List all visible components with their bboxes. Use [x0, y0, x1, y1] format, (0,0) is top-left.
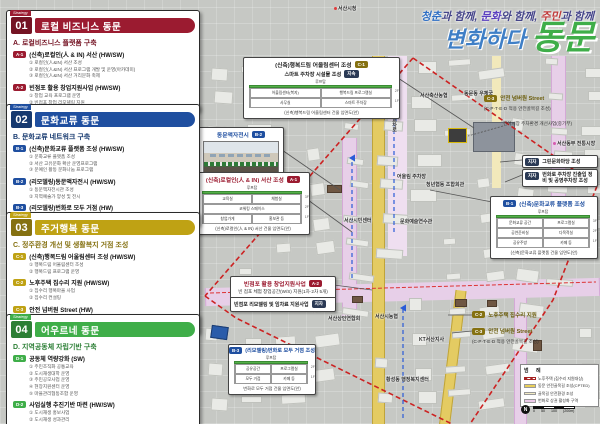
strategy-panel-02: Strategy02문화교류 동문B. 문화교류 네트워크 구축B-1(신축)문…	[6, 104, 200, 226]
project-bullet: ⑤ 마을관리협동조합 운영	[29, 391, 193, 398]
callout-b2-badge: B-2	[252, 131, 265, 138]
elevation-table-b1: 루프탑문화교류 공간프로그램실3F공연준비실다목적실2F공유주방카페 등1F	[496, 210, 590, 248]
legend-row: 노후주택 (집수리 지원대상)	[524, 376, 595, 382]
scale-tick: 50	[541, 409, 545, 413]
table-cell: 스마트 주차장	[321, 98, 392, 108]
map-building	[241, 396, 262, 403]
project-bullet: ① 주민조직화 공통교육	[29, 364, 193, 371]
scale-tick: 0	[533, 409, 535, 413]
project-title: 안전 넘버원 Street (HW)	[29, 305, 93, 314]
legend-title: 범 례	[524, 367, 595, 374]
table-floor-tag: 1F	[311, 375, 315, 379]
map-building	[448, 388, 471, 397]
callout-a2: 빈점포 활용 창업지원사업 A-2 빈 점포 체험 창업공간(W/S) 지원(1…	[230, 276, 336, 312]
table-cell: 행복드림 프로그램실	[321, 88, 392, 98]
map-label: 문화예술연수관	[400, 218, 432, 225]
scale-tick: 100	[551, 409, 557, 413]
project-code-badge: B-2	[13, 178, 26, 185]
map-building	[214, 90, 234, 104]
map-label: KT서산지사	[419, 336, 444, 343]
table-floor-tag: 2F	[305, 205, 309, 209]
strategy-panel-04: Strategy04어우르네 동문D. 지역공동체 자립기반 구축D-1공동체 …	[6, 314, 200, 424]
callout-c1-caption: (신축)행복드림 어울림센터 건물 입면도(안)	[247, 110, 396, 116]
map-building	[417, 154, 442, 167]
legend-swatch	[524, 399, 536, 403]
project-bullet: ① 동문액자전시관 조성	[29, 187, 193, 194]
strategy-title: 문화교류 동문	[35, 112, 195, 127]
table-floor-row: 어울림센터(복지)행복드림 프로그램실2F	[249, 88, 392, 98]
callout-a2-sub: 빈 점포 체험 창업공간(W/S) 지원(1차·2차 5개)	[234, 289, 332, 295]
legend-label: 동문 안전골목길 조성(CPTED)	[538, 383, 590, 389]
project-item-head: C-3안전 넘버원 Street (HW)	[13, 305, 193, 314]
strategy-number: 03	[11, 219, 32, 236]
project-title: (리모델링)동문액자전시 (HW/SW)	[29, 177, 115, 186]
table-floor-tag: 2F	[311, 365, 315, 369]
label-c3-top: C-3 안전 넘버원 Street (C·P·T·E·D 적용 안전골목길 조성…	[484, 94, 551, 112]
map-building	[418, 391, 437, 404]
label-c3-bottom: C-3 안전 넘버원 Street (C·P·T·E·D 적용 안전골목길 조성…	[472, 327, 539, 345]
project-item-head: A-1(신축)로컬인(人 & IN) 서산 (HW/SW)	[13, 50, 193, 59]
map-label: 황성동 행정복지센터	[386, 376, 429, 383]
table-floor-row: 공유주방카페 등1F	[496, 238, 590, 248]
table-floor-tag: 1F	[593, 239, 597, 243]
strategy-subtitle: A. 로컬비즈니스 플랫폼 구축	[13, 38, 193, 48]
project-bullet: ③ 문예인 활동 문화나눔 프로그램	[29, 167, 193, 174]
project-item-head: B-1(신축)문화교류 플랫폼 조성 (HW/SW)	[13, 144, 193, 153]
map-building	[314, 332, 341, 348]
callout-b2-title: 동문액자전시	[217, 130, 249, 139]
strategy-subtitle: C. 정주환경 개선 및 생활복지 거점 조성	[13, 240, 193, 250]
callout-a1-title: (신축)로컬인(人 & IN) 서산 조성	[206, 175, 284, 184]
legend-swatch	[524, 377, 536, 381]
map-label: 어울림 주차장	[397, 173, 426, 180]
callout-c1-sub: 스마트 주차장 시설물 조성	[284, 71, 341, 78]
table-cell: 공유공간	[235, 364, 271, 374]
project-bullets: ① 동문액자전시관 조성② 지역예술가 양성 및 전시	[29, 187, 193, 200]
map-building	[344, 122, 360, 131]
label-c3-top-title: 안전 넘버원 Street	[500, 94, 544, 102]
strategy-header: Strategy02문화교류 동문	[11, 111, 195, 128]
legend-row: 골목길 안전환경 조성	[524, 391, 595, 397]
table-cell: 체험실	[252, 194, 301, 204]
map-label: 서산축산농협	[420, 92, 448, 99]
strategy-header: Strategy04어우르네 동문	[11, 321, 195, 338]
table-cell: 어울림센터(복지)	[250, 88, 321, 98]
label-c3-bottom-title: 안전 넘버원 Street	[488, 327, 532, 335]
table-cell: 사무실	[250, 98, 321, 108]
project-item: B-1(신축)문화교류 플랫폼 조성 (HW/SW)① 문화교류 플랫폼 조성②…	[13, 144, 193, 174]
project-item: D-2사업실행 추진기반 마련 (HW/SW)① 도시재생 홍보사업② 도시재생…	[13, 400, 193, 423]
table-floor-row: 코워킹 스페이스2F	[202, 204, 302, 214]
table-cell: 카페 등	[543, 238, 589, 248]
map-building	[409, 298, 422, 311]
project-item-head: B-2(리모델링)동문액자전시 (HW/SW)	[13, 177, 193, 186]
label-green-plaza: 지자 그린문화마당 조성	[522, 155, 598, 168]
project-code-badge: D-2	[13, 401, 26, 408]
callout-a2-badge: A-2	[309, 280, 322, 287]
map-label: 서산시민센터	[344, 217, 372, 224]
elevation-table-a1: 루프탑교육실체험실3F코워킹 스페이스2F창업가게홍보관 등1F	[202, 186, 302, 224]
place-dot-icon	[553, 142, 556, 145]
project-item-head: A-2빈점포 활용 창업지원사업 (HW/SW)	[13, 83, 193, 92]
project-item: A-1(신축)로컬인(人 & IN) 서산 (HW/SW)① 로컬인(人&IN)…	[13, 50, 193, 80]
strategy-header: Strategy03주거행복 동문	[11, 219, 195, 236]
project-title: (신축)행복드림 어울림센터 조성 (HW/SW)	[29, 252, 135, 261]
scale-bar: N 050100(200m)	[521, 405, 575, 414]
tagline-part: 청춘	[421, 11, 441, 23]
project-bullet: ② 도시재생 성과관리	[29, 417, 193, 424]
callout-c1-title: (신축)행복드림 어울림센터 조성	[275, 60, 351, 69]
map-building	[377, 155, 399, 166]
callout-c1-sub-badge: 지속	[344, 70, 358, 78]
project-code-badge: C-2	[13, 279, 26, 286]
elevation-table-b3: 루프탑공유공간프로그램실2F모두 거점카페 등1F	[234, 356, 308, 384]
strategy-number: 01	[11, 17, 32, 34]
table-floor-tag: 2F	[395, 89, 399, 93]
table-floor-row: 사무실스마트 주차장1F	[249, 98, 392, 108]
callout-a1: (신축)로컬인(人 & IN) 서산 조성 A-1 루프탑교육실체험실3F코워킹…	[196, 172, 310, 235]
project-code-badge: C-3	[13, 306, 26, 313]
callout-a1-badge: A-1	[287, 176, 300, 183]
label-c3-top-sub: (C·P·T·E·D 적용 안전골목길 조성)	[484, 106, 551, 112]
project-item-head: D-1공동체 역량강화 (SW)	[13, 354, 193, 363]
strategy-number: 04	[11, 321, 32, 338]
map-building	[551, 127, 568, 135]
map-building	[484, 362, 510, 375]
project-item: C-2노후주택 집수리 지원 (HW/SW)① 집수리 행복마을 사업② 집수리…	[13, 278, 193, 301]
project-bullet: ② 행복드림 프로그램 운영	[29, 269, 193, 276]
map-building	[309, 182, 326, 197]
map-building	[375, 358, 389, 369]
project-bullets: ① 집수리 행복마을 사업② 집수리 컨설팅	[29, 288, 193, 301]
project-code-badge: D-1	[13, 355, 26, 362]
plan-poster: 서산시청서산축산농협동문동 우체국서산동부 전통시장1호광장 교차로어울림 주차…	[0, 0, 600, 424]
map-building	[487, 300, 497, 307]
table-floor-row: 모두 거점카페 등1F	[234, 374, 308, 384]
label-parking-badge: 지자	[525, 172, 539, 180]
map-building	[477, 67, 505, 81]
legend-label: 번화로 상권 활성화 구역	[538, 398, 578, 404]
map-label: 서산시농협	[375, 313, 398, 320]
map-label: 청년협동 조합회관	[426, 181, 464, 188]
title-main: 동문	[531, 23, 594, 54]
project-bullet: ① 문화교류 플랫폼 조성	[29, 154, 193, 161]
callout-c1-badge: C-1	[355, 61, 368, 68]
strategy-title: 어우르네 동문	[35, 322, 195, 337]
scale-tick: (200m)	[563, 409, 574, 413]
map-building	[414, 119, 437, 132]
table-floor-tag: 1F	[395, 99, 399, 103]
label-c3-bottom-sub: (C·P·T·E·D 적용 안전골목길 조성)	[472, 339, 539, 345]
label-parking: 지자 번화로 주차장 진출입 정비 및 공영주차장 조성	[522, 169, 598, 187]
map-building	[410, 189, 437, 202]
strategy-header: Strategy01로컬 비즈니스 동문	[11, 17, 195, 34]
label-c2-bottom-title: 노후주택 집수리 지원	[488, 311, 537, 319]
map-building	[445, 365, 466, 373]
callout-b3-badge: B-3	[229, 347, 242, 354]
table-floor-row: 창업가게홍보관 등1F	[202, 214, 302, 224]
project-code-badge: A-1	[13, 51, 26, 58]
label-fish-market: 건어시장 주차환경 개선사업(중기부)	[503, 121, 599, 127]
project-title: (신축)로컬인(人 & IN) 서산 (HW/SW)	[29, 50, 124, 59]
label-c3-bottom-badge: C-3	[472, 328, 485, 335]
callout-b1-caption: (신축)문화교류 플랫폼 건물 입면도(안)	[494, 250, 594, 256]
project-title: 빈점포 활용 창업지원사업 (HW/SW)	[29, 83, 120, 92]
map-building	[418, 61, 437, 74]
civic-building	[210, 325, 229, 340]
project-title: (리모델링)번화로 모두 거점 (HW)	[29, 203, 113, 212]
table-cell: 공연준비실	[497, 228, 543, 238]
strategy-tab: Strategy	[10, 10, 31, 16]
map-building	[477, 397, 505, 411]
strategy-panel-01: Strategy01로컬 비즈니스 동문A. 로컬비즈니스 플랫폼 구축A-1(…	[6, 10, 200, 112]
callout-b1: B-1 (신축)문화교류 플랫폼 조성 루프탑문화교류 공간프로그램실3F공연준…	[490, 196, 598, 259]
project-item-head: B-3(리모델링)번화로 모두 거점 (HW)	[13, 203, 193, 212]
legend-row: 동문 안전골목길 조성(CPTED)	[524, 383, 595, 389]
map-building	[306, 147, 321, 162]
map-building	[352, 296, 363, 303]
project-item-head: C-2노후주택 집수리 지원 (HW/SW)	[13, 278, 193, 287]
map-legend: 범 례 노후주택 (집수리 지원대상)동문 안전골목길 조성(CPTED)골목길…	[520, 364, 599, 407]
project-item: A-2빈점포 활용 창업지원사업 (HW/SW)① 창업 교육 프로그램 운영②…	[13, 83, 193, 106]
title-script: 변화하다	[444, 22, 525, 54]
project-item: D-1공동체 역량강화 (SW)① 주민조직화 공통교육② 도시재생대학 운영③…	[13, 354, 193, 397]
legend-label: 골목길 안전환경 조성	[538, 391, 573, 397]
map-building	[579, 328, 592, 338]
project-item-head: C-1(신축)행복드림 어울림센터 조성 (HW/SW)	[13, 252, 193, 261]
project-bullet: ③ 로컬인(人&IN) 서산 거리문화 축제	[29, 73, 193, 80]
label-c3-top-badge: C-3	[484, 95, 497, 102]
elevation-table-c1: 루프탑어울림센터(복지)행복드림 프로그램실2F사무실스마트 주차장1F	[249, 80, 392, 108]
label-c2-bottom-badge: C-2	[472, 311, 485, 318]
project-bullet: ② 지역예술가 양성 및 전시	[29, 194, 193, 201]
main-title: 청춘과 함께, 문화와 함께, 주민과 함께 변화하다 동문	[421, 8, 594, 54]
callout-b3-title: (리모델링)번화로 모두 거점 조성	[245, 347, 315, 354]
strategy-number: 02	[11, 111, 32, 128]
map-building	[588, 91, 600, 101]
table-cell: 모두 거점	[235, 374, 271, 384]
map-building	[276, 242, 292, 253]
map-building	[446, 272, 461, 280]
map-label: 서산시청	[334, 5, 356, 12]
table-floor-tag: 2F	[593, 229, 597, 233]
strategy-title: 로컬 비즈니스 동문	[35, 18, 195, 33]
legend-swatch	[524, 384, 536, 388]
map-building	[211, 67, 229, 81]
fish-market-building	[448, 128, 467, 143]
map-building	[312, 217, 331, 232]
project-title: 공동체 역량강화 (SW)	[29, 354, 85, 363]
table-floor-tag: 3F	[305, 195, 309, 199]
table-cell: 다목적실	[543, 228, 589, 238]
label-c2-bottom: C-2 노후주택 집수리 지원	[472, 311, 537, 319]
project-bullets: ① 문화교류 플랫폼 조성② 서산 고유문화 확산 운영프로그램③ 문예인 활동…	[29, 154, 193, 174]
map-building	[581, 126, 600, 136]
map-building	[585, 68, 600, 78]
strategy-tab: Strategy	[10, 314, 31, 320]
callout-a2-attach: 빈점포 리모델링 및 임차료 지원사업	[234, 301, 309, 308]
place-dot-icon	[334, 7, 337, 10]
scale-ticks: 050100(200m)	[533, 409, 575, 413]
label-fish-market-text: 건어시장 주차환경 개선사업(중기부)	[503, 121, 572, 127]
map-building	[376, 248, 404, 260]
callout-b1-badge: B-1	[503, 200, 516, 207]
map-label: 서산상인연합회	[328, 315, 360, 322]
strategy-tab: Strategy	[10, 212, 31, 218]
project-bullet: ① 로컬인(人&IN) 서산 조성	[29, 60, 193, 67]
callout-b3: B-3 (리모델링)번화로 모두 거점 조성 루프탑공유공간프로그램실2F모두 …	[228, 344, 316, 395]
label-green-plaza-title: 그린문화마당 조성	[542, 158, 580, 165]
table-cell: 프로그램실	[271, 364, 307, 374]
table-floor-row: 공유공간프로그램실2F	[234, 364, 308, 374]
strategy-tab: Strategy	[10, 104, 31, 110]
callout-a2-title: 빈점포 활용 창업지원사업	[244, 279, 306, 288]
project-title: 노후주택 집수리 지원 (HW/SW)	[29, 278, 109, 287]
map-building	[378, 392, 394, 403]
table-cell: 홍보관 등	[252, 214, 301, 224]
table-cell: 문화교류 공간	[497, 218, 543, 228]
project-title: 사업실행 추진기반 마련 (HW/SW)	[29, 400, 115, 409]
map-building	[455, 299, 467, 307]
strategy-title: 주거행복 동문	[35, 220, 195, 235]
table-cell: 카페 등	[271, 374, 307, 384]
map-building	[452, 330, 471, 338]
callout-c1: (신축)행복드림 어울림센터 조성 C-1 스마트 주차장 시설물 조성 지속 …	[243, 57, 400, 119]
map-building	[315, 240, 336, 256]
map-building	[208, 362, 224, 376]
table-cell: 교육실	[203, 194, 252, 204]
project-code-badge: B-3	[13, 204, 26, 211]
project-bullets: ① 도시재생 홍보사업② 도시재생 성과관리	[29, 410, 193, 423]
project-bullet: ④ 현장지원센터 운영	[29, 384, 193, 391]
callout-a1-caption: (신축)로컬인(人 & IN) 서산 건물 입면도(안)	[200, 226, 306, 232]
project-item-head: D-2사업실행 추진기반 마련 (HW/SW)	[13, 400, 193, 409]
strategy-subtitle: B. 문화교류 네트워크 구축	[13, 132, 193, 142]
label-parking-title: 번화로 주차장 진출입 정비 및 공영주차장 조성	[542, 172, 595, 185]
map-building	[448, 58, 471, 67]
table-cell: 프로그램실	[543, 218, 589, 228]
project-bullet: ② 집수리 컨설팅	[29, 295, 193, 302]
label-green-plaza-badge: 지자	[525, 158, 539, 166]
legend-row: 번화로 상권 활성화 구역	[524, 398, 595, 404]
table-floor-tag: 3F	[593, 219, 597, 223]
project-bullets: ① 주민조직화 공통교육② 도시재생대학 운영③ 주민공모사업 운영④ 현장지원…	[29, 364, 193, 397]
callout-a2-attach-badge: 지자	[312, 300, 326, 308]
legend-swatch	[524, 392, 536, 396]
table-floor-tag: 1F	[305, 215, 309, 219]
north-arrow-icon: N	[521, 405, 530, 414]
legend-label: 노후주택 (집수리 지원대상)	[538, 376, 583, 382]
project-bullet: ① 행복드림 어울림센터 조성	[29, 262, 193, 269]
table-cell: 코워킹 스페이스	[203, 204, 301, 214]
table-floor-row: 공연준비실다목적실2F	[496, 228, 590, 238]
table-floor-row: 문화교류 공간프로그램실3F	[496, 218, 590, 228]
strategy-subtitle: D. 지역공동체 자립기반 구축	[13, 342, 193, 352]
project-code-badge: A-2	[13, 84, 26, 91]
map-building	[545, 58, 558, 66]
project-item: B-2(리모델링)동문액자전시 (HW/SW)① 동문액자전시관 조성② 지역예…	[13, 177, 193, 200]
project-bullet: ① 창업 교육 프로그램 운영	[29, 93, 193, 100]
map-building	[327, 185, 342, 193]
project-code-badge: C-1	[13, 253, 26, 260]
project-bullets: ① 행복드림 어울림센터 조성② 행복드림 프로그램 운영	[29, 262, 193, 275]
table-floor-row: 교육실체험실3F	[202, 194, 302, 204]
map-building	[449, 307, 466, 315]
map-building	[281, 393, 307, 405]
map-label: 서산동부 전통시장	[553, 140, 595, 147]
map-building	[239, 268, 252, 275]
callout-b3-caption: 번화로 모두 거점 건물 입면도(안)	[232, 386, 312, 392]
project-bullet: ① 집수리 행복마을 사업	[29, 288, 193, 295]
callout-b1-title: (신축)문화교류 플랫폼 조성	[519, 199, 585, 208]
table-cell: 창업가게	[203, 214, 252, 224]
map-building	[443, 238, 456, 246]
project-code-badge: B-1	[13, 145, 26, 152]
map-building	[211, 397, 229, 411]
project-bullet: ① 도시재생 홍보사업	[29, 410, 193, 417]
project-bullet: ③ 주민공모사업 운영	[29, 377, 193, 384]
project-bullets: ① 로컬인(人&IN) 서산 조성② 로컬인(人&IN) 서산 프로그램 개발 …	[29, 60, 193, 80]
project-item: C-1(신축)행복드림 어울림센터 조성 (HW/SW)① 행복드림 어울림센터…	[13, 252, 193, 275]
project-title: (신축)문화교류 플랫폼 조성 (HW/SW)	[29, 144, 124, 153]
table-cell: 공유주방	[497, 238, 543, 248]
map-building	[476, 177, 490, 189]
